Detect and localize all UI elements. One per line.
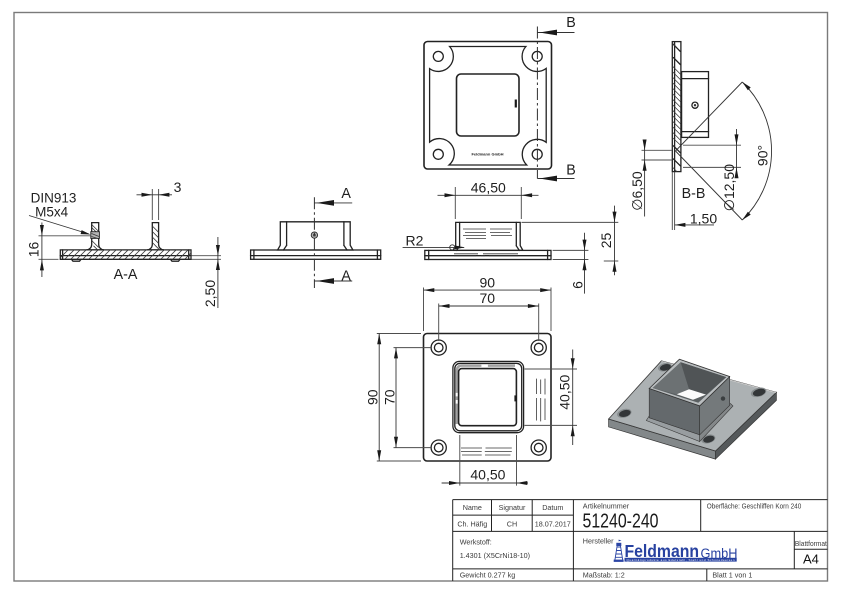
svg-text:Blatt 1 von 1: Blatt 1 von 1 xyxy=(712,571,752,580)
svg-text:CH: CH xyxy=(507,520,517,529)
svg-text:DIN913: DIN913 xyxy=(31,191,77,206)
svg-text:A: A xyxy=(341,186,351,202)
svg-text:16: 16 xyxy=(26,242,42,258)
svg-text:2,50: 2,50 xyxy=(202,280,218,307)
svg-text:1.4301 (X5CrNi18-10): 1.4301 (X5CrNi18-10) xyxy=(460,551,530,560)
svg-text:Hersteller: Hersteller xyxy=(583,537,614,546)
svg-text:Oberfläche: Geschliffen Korn: Oberfläche: Geschliffen Korn 240 xyxy=(707,502,802,511)
svg-text:3: 3 xyxy=(174,179,182,195)
svg-text:Name: Name xyxy=(463,503,482,512)
svg-text:∅6,50: ∅6,50 xyxy=(629,171,645,211)
svg-text:Ch. Häfig: Ch. Häfig xyxy=(457,520,487,529)
svg-text:∅12,50: ∅12,50 xyxy=(721,164,737,211)
svg-text:40,50: 40,50 xyxy=(470,466,505,482)
svg-text:70: 70 xyxy=(480,290,496,306)
svg-text:R2: R2 xyxy=(406,233,424,249)
svg-text:B: B xyxy=(566,15,576,31)
svg-text:Datum: Datum xyxy=(542,503,563,512)
svg-text:Werkstoff:: Werkstoff: xyxy=(460,538,492,547)
svg-text:90°: 90° xyxy=(754,145,770,166)
svg-text:Maßstab: 1:2: Maßstab: 1:2 xyxy=(583,571,625,580)
svg-text:18.07.2017: 18.07.2017 xyxy=(535,520,571,529)
svg-text:Signatur: Signatur xyxy=(499,503,526,512)
svg-text:6: 6 xyxy=(570,281,586,289)
svg-text:Artikelnummer: Artikelnummer xyxy=(583,502,630,511)
svg-text:1,50: 1,50 xyxy=(690,210,717,226)
svg-text:B-B: B-B xyxy=(682,186,706,202)
svg-text:A: A xyxy=(341,269,351,285)
svg-text:40,50: 40,50 xyxy=(557,374,573,409)
svg-text:Gewicht 0.277 kg: Gewicht 0.277 kg xyxy=(460,571,516,580)
svg-text:A4: A4 xyxy=(803,552,819,567)
svg-text:90: 90 xyxy=(365,389,381,405)
svg-text:M5x4: M5x4 xyxy=(35,205,69,220)
svg-text:90: 90 xyxy=(480,274,496,290)
svg-text:Feldmann GmbH: Feldmann GmbH xyxy=(471,152,503,157)
svg-text:B: B xyxy=(566,162,576,178)
svg-text:Blattformat: Blattformat xyxy=(795,539,827,548)
svg-text:25: 25 xyxy=(598,233,614,249)
svg-text:46,50: 46,50 xyxy=(471,180,506,196)
svg-text:51240-240: 51240-240 xyxy=(583,510,659,532)
svg-text:Qualitätsprodukte aus Edelstah: Qualitätsprodukte aus Edelstahl, Stahl u… xyxy=(627,558,735,562)
svg-text:A-A: A-A xyxy=(114,267,138,283)
svg-text:70: 70 xyxy=(381,389,397,405)
